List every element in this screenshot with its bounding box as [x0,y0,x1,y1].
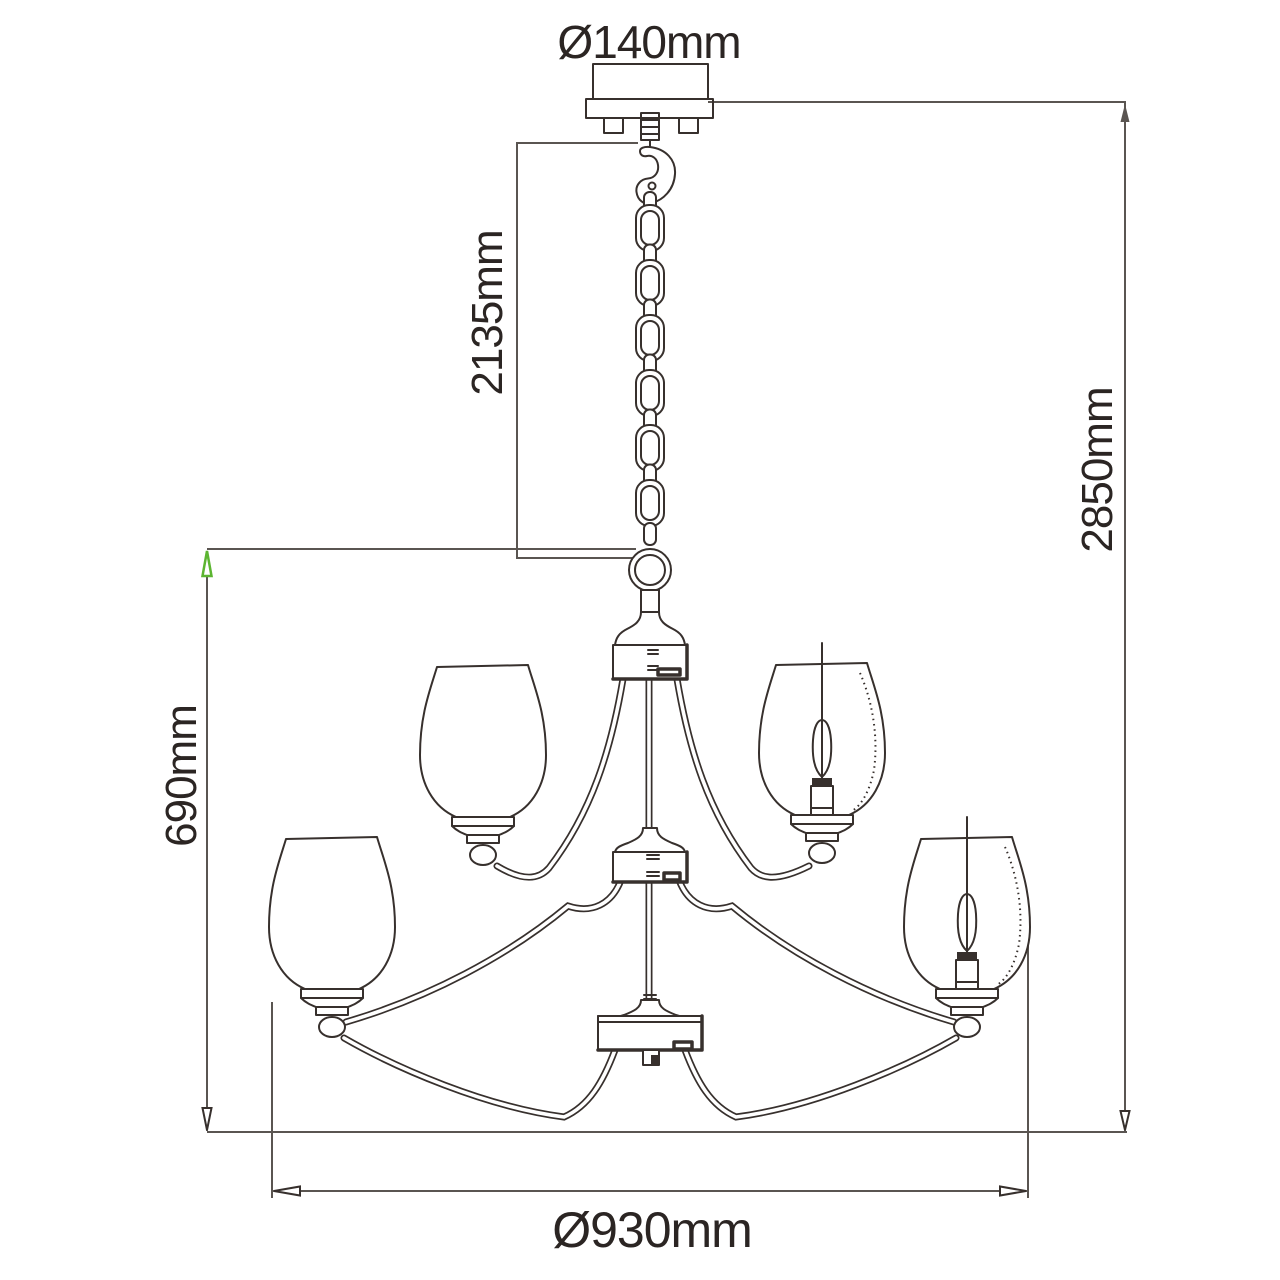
total-height-label: 2850mm [1076,387,1120,552]
hanger-ring [629,549,671,612]
arm-lower-left [344,1038,615,1117]
arm-lower-right [685,1038,956,1117]
dimension-line-chain-length [517,143,638,558]
shade-lower-left [269,837,395,1037]
shade-fitter [936,989,998,998]
chandelier-line-drawing [0,0,1280,1280]
finial [643,1050,660,1065]
dimension-drawing-canvas: Ø140mm 2135mm 2850mm 690mm Ø930mm [0,0,1280,1280]
arm-ball-joint [809,843,835,863]
arrow-right-icon [1000,1187,1026,1196]
lamp-socket [811,786,833,818]
arrow-left-icon [274,1187,300,1196]
shade-upper-left [420,665,546,865]
body-height-label: 690mm [160,705,204,847]
lamp-socket [956,960,978,992]
suspension-chain [636,192,664,545]
bulb-base [812,778,832,786]
arm-ball-joint [319,1017,345,1037]
arm-ball-joint [954,1017,980,1037]
arrow-down-icon [203,1108,212,1130]
shade-fitter [791,815,853,824]
green-arrow-up-icon [203,551,212,576]
bulb-base [957,952,977,960]
canopy-diameter-label: Ø140mm [557,19,740,65]
ring-connector [641,590,659,612]
dimension-line-total-height [708,102,1130,1132]
chain-length-label: 2135mm [466,230,510,395]
arrow-down-icon [1121,1111,1130,1130]
ceiling-canopy [586,64,713,149]
arm-ball-joint [470,845,496,865]
arrow-up-icon [1121,104,1130,122]
shade-lower-right [904,817,1030,1037]
upper-hub [613,612,687,679]
mounting-tab [679,118,698,133]
shade-fitter [301,989,363,998]
shade-fitter [452,817,514,826]
shade-upper-right [759,643,885,863]
middle-hub [613,828,687,882]
mounting-tab [604,118,623,133]
body-diameter-label: Ø930mm [552,1205,752,1255]
